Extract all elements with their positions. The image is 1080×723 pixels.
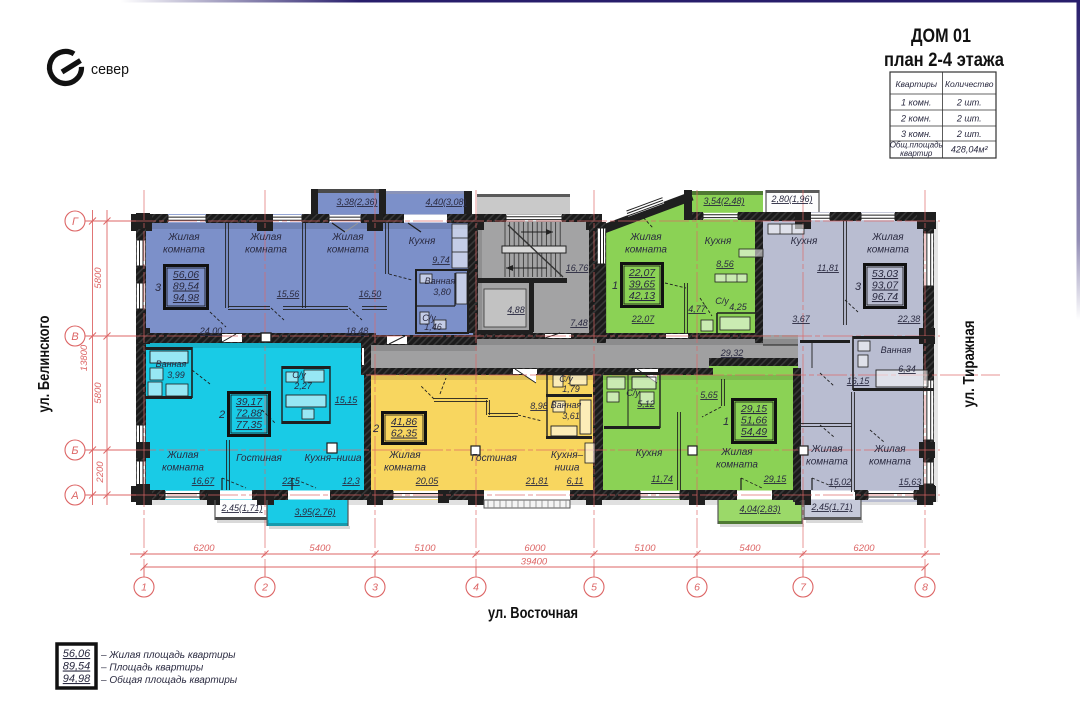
svg-text:1 комн.: 1 комн. — [901, 98, 931, 108]
svg-text:8,98: 8,98 — [530, 401, 548, 411]
svg-text:3,80: 3,80 — [433, 287, 451, 297]
svg-text:ДОМ 01: ДОМ 01 — [911, 26, 971, 47]
svg-text:план 2-4 этажа: план 2-4 этажа — [884, 50, 1004, 71]
svg-text:Жилая: Жилая — [167, 232, 200, 243]
svg-text:– Общая площадь квартиры: – Общая площадь квартиры — [100, 674, 238, 686]
svg-text:Кухня–ниша: Кухня–ниша — [304, 453, 362, 464]
svg-text:2,45(1,71): 2,45(1,71) — [220, 503, 262, 513]
svg-text:Жилая: Жилая — [331, 232, 364, 243]
svg-text:16,67: 16,67 — [192, 476, 216, 486]
svg-text:комната: комната — [384, 463, 426, 474]
svg-text:5100: 5100 — [634, 543, 656, 554]
svg-text:51,66: 51,66 — [741, 415, 767, 427]
svg-text:29,15: 29,15 — [763, 474, 788, 484]
svg-text:Гостиная: Гостиная — [236, 453, 282, 464]
svg-text:39,17: 39,17 — [236, 396, 263, 408]
svg-text:Кухня: Кухня — [705, 236, 732, 247]
svg-text:8: 8 — [922, 582, 928, 594]
svg-text:Кухня: Кухня — [636, 448, 663, 459]
svg-text:9,74: 9,74 — [432, 255, 450, 265]
svg-text:комната: комната — [162, 463, 204, 474]
svg-text:16,15: 16,15 — [847, 376, 871, 386]
svg-text:Жилая: Жилая — [629, 232, 662, 243]
svg-text:комната: комната — [163, 245, 205, 256]
svg-text:3: 3 — [155, 282, 162, 294]
svg-text:2,45(1,71): 2,45(1,71) — [810, 502, 852, 512]
svg-text:Жилая: Жилая — [810, 444, 843, 455]
svg-text:5800: 5800 — [93, 267, 104, 289]
svg-text:Квартиры: Квартиры — [895, 79, 937, 89]
svg-text:Б: Б — [71, 445, 78, 457]
svg-text:Ванная: Ванная — [425, 276, 456, 286]
svg-text:комната: комната — [245, 245, 287, 256]
svg-text:Жилая: Жилая — [871, 232, 904, 243]
svg-text:1,46: 1,46 — [424, 322, 442, 332]
svg-text:ниша: ниша — [555, 463, 580, 474]
svg-text:2,27: 2,27 — [293, 381, 313, 391]
svg-text:5800: 5800 — [93, 382, 104, 404]
svg-text:Гостиная: Гостиная — [471, 453, 517, 464]
svg-text:89,54: 89,54 — [173, 281, 199, 293]
svg-text:94,98: 94,98 — [63, 673, 91, 685]
svg-text:29,15: 29,15 — [740, 403, 767, 415]
svg-text:Ванная: Ванная — [156, 359, 187, 369]
svg-text:3,99: 3,99 — [167, 370, 185, 380]
svg-text:комната: комната — [806, 457, 848, 468]
svg-text:Ванная: Ванная — [881, 345, 912, 355]
svg-text:комната: комната — [867, 245, 909, 256]
svg-text:Жилая: Жилая — [388, 450, 421, 461]
svg-text:24,00: 24,00 — [199, 326, 223, 336]
svg-text:Жилая: Жилая — [166, 450, 199, 461]
svg-text:94,98: 94,98 — [173, 292, 199, 304]
svg-text:4: 4 — [473, 582, 479, 594]
svg-text:2200: 2200 — [95, 461, 106, 484]
svg-text:3,61: 3,61 — [562, 411, 580, 421]
svg-text:5400: 5400 — [739, 543, 761, 554]
svg-text:15,56: 15,56 — [277, 289, 300, 299]
svg-text:6,34: 6,34 — [898, 364, 916, 374]
svg-text:72,88: 72,88 — [236, 408, 262, 420]
svg-text:3,95(2,76): 3,95(2,76) — [294, 507, 335, 517]
svg-text:89,54: 89,54 — [63, 661, 91, 673]
svg-text:ул. Тиражная: ул. Тиражная — [961, 321, 978, 408]
svg-text:96,74: 96,74 — [872, 291, 898, 303]
svg-text:С/у: С/у — [715, 296, 729, 306]
svg-text:Кухня–: Кухня– — [551, 450, 584, 461]
svg-text:39400: 39400 — [521, 557, 548, 568]
svg-text:5,65: 5,65 — [700, 390, 719, 400]
svg-text:3: 3 — [372, 582, 378, 594]
svg-text:5400: 5400 — [309, 543, 331, 554]
svg-text:2 шт.: 2 шт. — [956, 98, 982, 108]
svg-text:3: 3 — [855, 281, 862, 293]
svg-text:93,07: 93,07 — [872, 280, 899, 292]
svg-text:18,48: 18,48 — [346, 326, 369, 336]
svg-text:Г: Г — [72, 216, 79, 228]
svg-text:2: 2 — [261, 582, 268, 594]
svg-text:3,38(2,36): 3,38(2,36) — [336, 197, 377, 207]
svg-text:С/у: С/у — [626, 388, 640, 398]
svg-text:54,49: 54,49 — [741, 426, 767, 438]
svg-text:56,06: 56,06 — [63, 648, 91, 660]
svg-text:6200: 6200 — [853, 543, 875, 554]
svg-text:2: 2 — [218, 409, 225, 421]
svg-text:– Жилая площадь квартиры: – Жилая площадь квартиры — [100, 650, 236, 661]
svg-text:5100: 5100 — [414, 543, 436, 554]
svg-text:15,15: 15,15 — [335, 395, 359, 405]
svg-text:3,54(2,48): 3,54(2,48) — [703, 196, 744, 206]
svg-text:42,13: 42,13 — [629, 290, 655, 302]
svg-text:39,65: 39,65 — [629, 279, 655, 291]
svg-text:15,02: 15,02 — [829, 477, 852, 487]
svg-text:15,63: 15,63 — [899, 477, 922, 487]
svg-text:С/у: С/у — [292, 370, 306, 380]
svg-text:3 комн.: 3 комн. — [901, 129, 931, 139]
svg-text:Количество: Количество — [945, 79, 994, 89]
svg-text:Жилая: Жилая — [873, 444, 906, 455]
svg-text:16,76: 16,76 — [566, 263, 589, 273]
svg-text:1: 1 — [612, 280, 618, 292]
svg-text:4,77: 4,77 — [688, 304, 707, 314]
svg-text:Кухня: Кухня — [791, 236, 818, 247]
svg-text:12,3: 12,3 — [342, 476, 360, 486]
svg-text:29,32: 29,32 — [720, 348, 744, 358]
svg-text:11,81: 11,81 — [817, 263, 839, 273]
svg-text:6,11: 6,11 — [567, 476, 584, 486]
svg-text:ул. Белинского: ул. Белинского — [36, 315, 53, 412]
svg-text:21,81: 21,81 — [525, 476, 549, 486]
svg-text:22,38: 22,38 — [897, 314, 921, 324]
svg-text:11,74: 11,74 — [651, 474, 673, 484]
svg-text:41,86: 41,86 — [391, 416, 417, 428]
svg-text:22,07: 22,07 — [631, 314, 656, 324]
svg-text:комната: комната — [716, 460, 758, 471]
svg-text:20,05: 20,05 — [415, 476, 440, 486]
svg-text:22,07: 22,07 — [628, 267, 656, 279]
svg-text:2: 2 — [372, 423, 379, 435]
svg-text:5,12: 5,12 — [637, 399, 655, 409]
svg-text:4,25: 4,25 — [729, 302, 748, 312]
svg-text:В: В — [71, 331, 78, 343]
svg-text:комната: комната — [327, 245, 369, 256]
svg-text:А: А — [70, 490, 78, 502]
svg-text:4,04(2,83): 4,04(2,83) — [739, 504, 780, 514]
svg-text:1,79: 1,79 — [562, 384, 580, 394]
svg-text:3,67: 3,67 — [792, 314, 811, 324]
svg-text:Кухня: Кухня — [409, 236, 436, 247]
svg-text:16,50: 16,50 — [359, 289, 382, 299]
svg-text:7,48: 7,48 — [570, 318, 588, 328]
svg-text:2,80(1,96): 2,80(1,96) — [770, 194, 812, 204]
svg-text:комната: комната — [625, 245, 667, 256]
svg-text:8,56: 8,56 — [716, 259, 734, 269]
svg-text:Ванная: Ванная — [551, 400, 582, 410]
svg-text:квартир: квартир — [900, 149, 933, 158]
svg-text:56,06: 56,06 — [173, 269, 199, 281]
svg-text:север: север — [91, 61, 129, 78]
svg-text:53,03: 53,03 — [872, 268, 898, 280]
svg-text:Жилая: Жилая — [720, 447, 753, 458]
svg-text:4,40(3,08): 4,40(3,08) — [425, 197, 466, 207]
svg-text:5: 5 — [591, 582, 597, 594]
svg-text:комната: комната — [869, 457, 911, 468]
svg-text:77,35: 77,35 — [236, 419, 262, 431]
svg-text:ул. Восточная: ул. Восточная — [488, 605, 578, 622]
svg-text:1: 1 — [141, 582, 147, 594]
svg-text:С/у: С/у — [559, 374, 573, 384]
svg-text:4,88: 4,88 — [507, 305, 525, 315]
svg-text:6000: 6000 — [524, 543, 546, 554]
svg-text:– Площадь квартиры: – Площадь квартиры — [100, 663, 204, 674]
svg-text:2 комн.: 2 комн. — [900, 114, 931, 124]
svg-text:6: 6 — [694, 582, 700, 594]
svg-text:62,35: 62,35 — [391, 428, 417, 440]
svg-text:6200: 6200 — [193, 543, 215, 554]
svg-text:1: 1 — [723, 416, 729, 428]
svg-text:2 шт.: 2 шт. — [956, 129, 982, 139]
svg-text:13800: 13800 — [79, 344, 90, 371]
svg-text:Жилая: Жилая — [249, 232, 282, 243]
svg-text:2 шт.: 2 шт. — [956, 114, 982, 124]
svg-text:428,04м²: 428,04м² — [951, 145, 989, 155]
svg-text:22,5: 22,5 — [281, 476, 301, 486]
